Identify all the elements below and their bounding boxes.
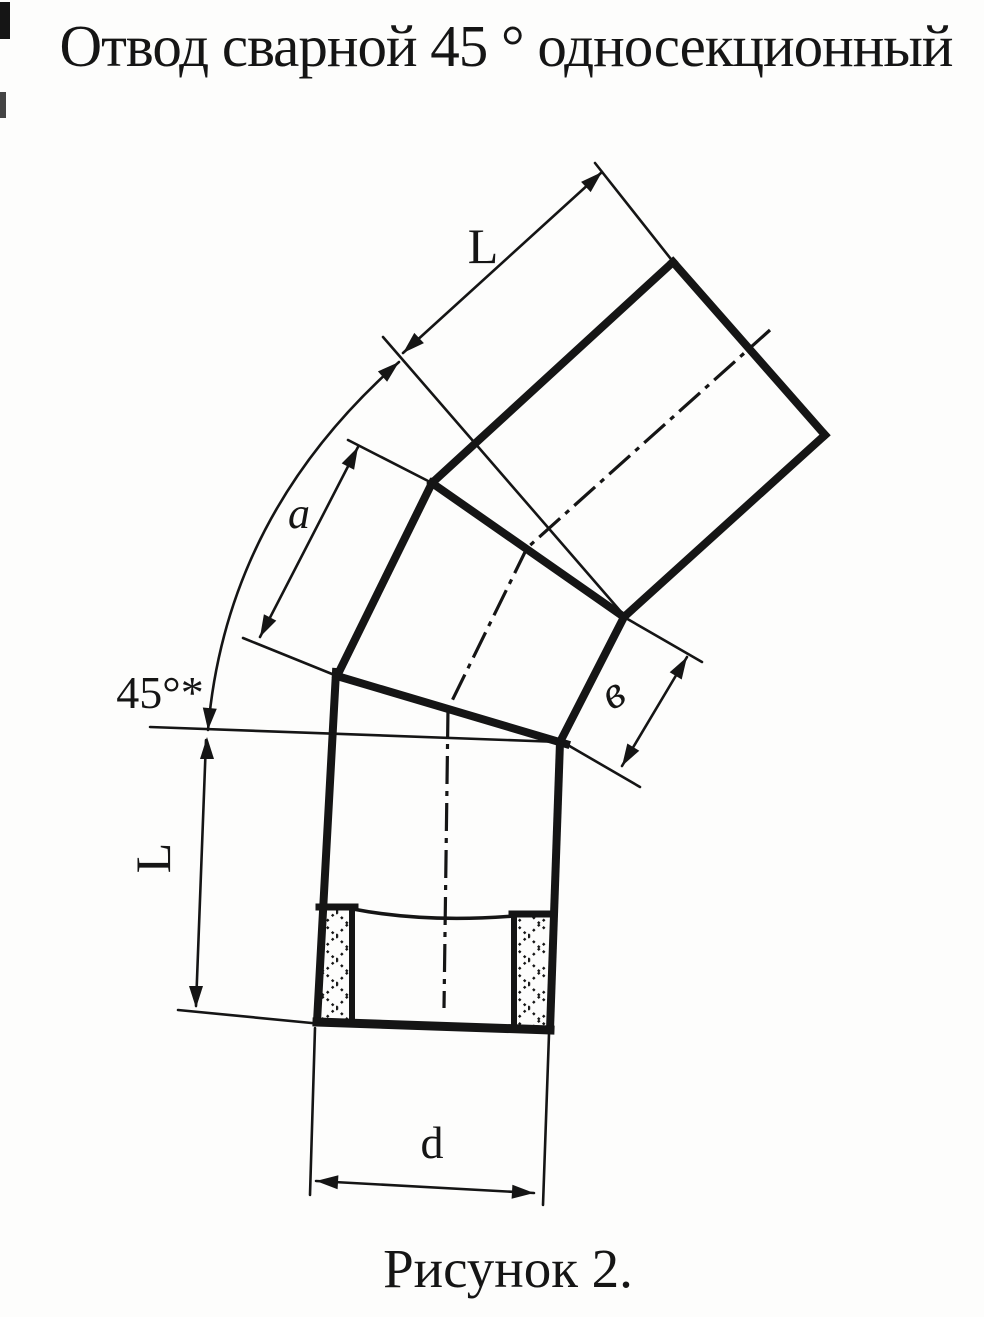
extension-line (243, 638, 337, 676)
arrowhead (670, 657, 687, 680)
middle-section-outer-edge (337, 483, 432, 676)
label-angle: 45°* (116, 667, 203, 718)
dimension-d: d (310, 1028, 549, 1205)
upper-pipe-segment (432, 262, 825, 617)
scan-mark (0, 2, 10, 39)
extension-line (150, 727, 560, 742)
dimension-angle-arc: 45°* (116, 362, 399, 730)
label-diameter: d (421, 1117, 444, 1168)
figure-caption: Рисунок 2. (16, 1240, 984, 1298)
extension-line (310, 1028, 315, 1195)
arrowhead (316, 1175, 338, 1189)
centerline-lower-axis (444, 709, 448, 1008)
dimension-a: a (243, 440, 432, 676)
label-length-top: L (468, 218, 499, 274)
centerline-middle-axis (448, 548, 527, 709)
scanned-drawing-page: Отвод сварной 45 ° односекционный (0, 0, 984, 1317)
arrowhead (512, 1185, 534, 1199)
left-wall-hatch (318, 910, 352, 1019)
elbow-technical-drawing: L 45°* a в (0, 0, 984, 1317)
scan-artifacts (0, 2, 10, 118)
angle-arc (208, 362, 399, 730)
extension-line (624, 617, 702, 662)
dimension-line (403, 172, 602, 353)
label-section-inner: в (591, 665, 634, 719)
extension-line (178, 1010, 322, 1024)
arrowhead (342, 447, 358, 470)
dimension-b: в (566, 617, 702, 787)
dimension-line (316, 1181, 534, 1193)
label-section-outer: a (288, 489, 310, 538)
arrowhead (189, 986, 203, 1008)
arrowhead (260, 614, 276, 637)
lower-pipe-right-edge (550, 742, 560, 1030)
scan-mark (0, 92, 6, 118)
label-length-left: L (125, 843, 181, 874)
pipe-wall-sections (318, 907, 550, 1027)
dimension-line (196, 740, 206, 1006)
extension-line (348, 440, 432, 483)
extension-line (543, 1034, 549, 1205)
extension-line (595, 163, 678, 268)
bore-top-line (353, 909, 514, 918)
arrowhead (203, 708, 217, 731)
dimension-line (260, 447, 358, 637)
arrowhead (622, 744, 639, 767)
arrowhead (200, 737, 214, 759)
middle-section (337, 483, 624, 744)
right-wall-hatch (514, 917, 547, 1026)
upper-pipe-inner-edge (624, 435, 825, 617)
